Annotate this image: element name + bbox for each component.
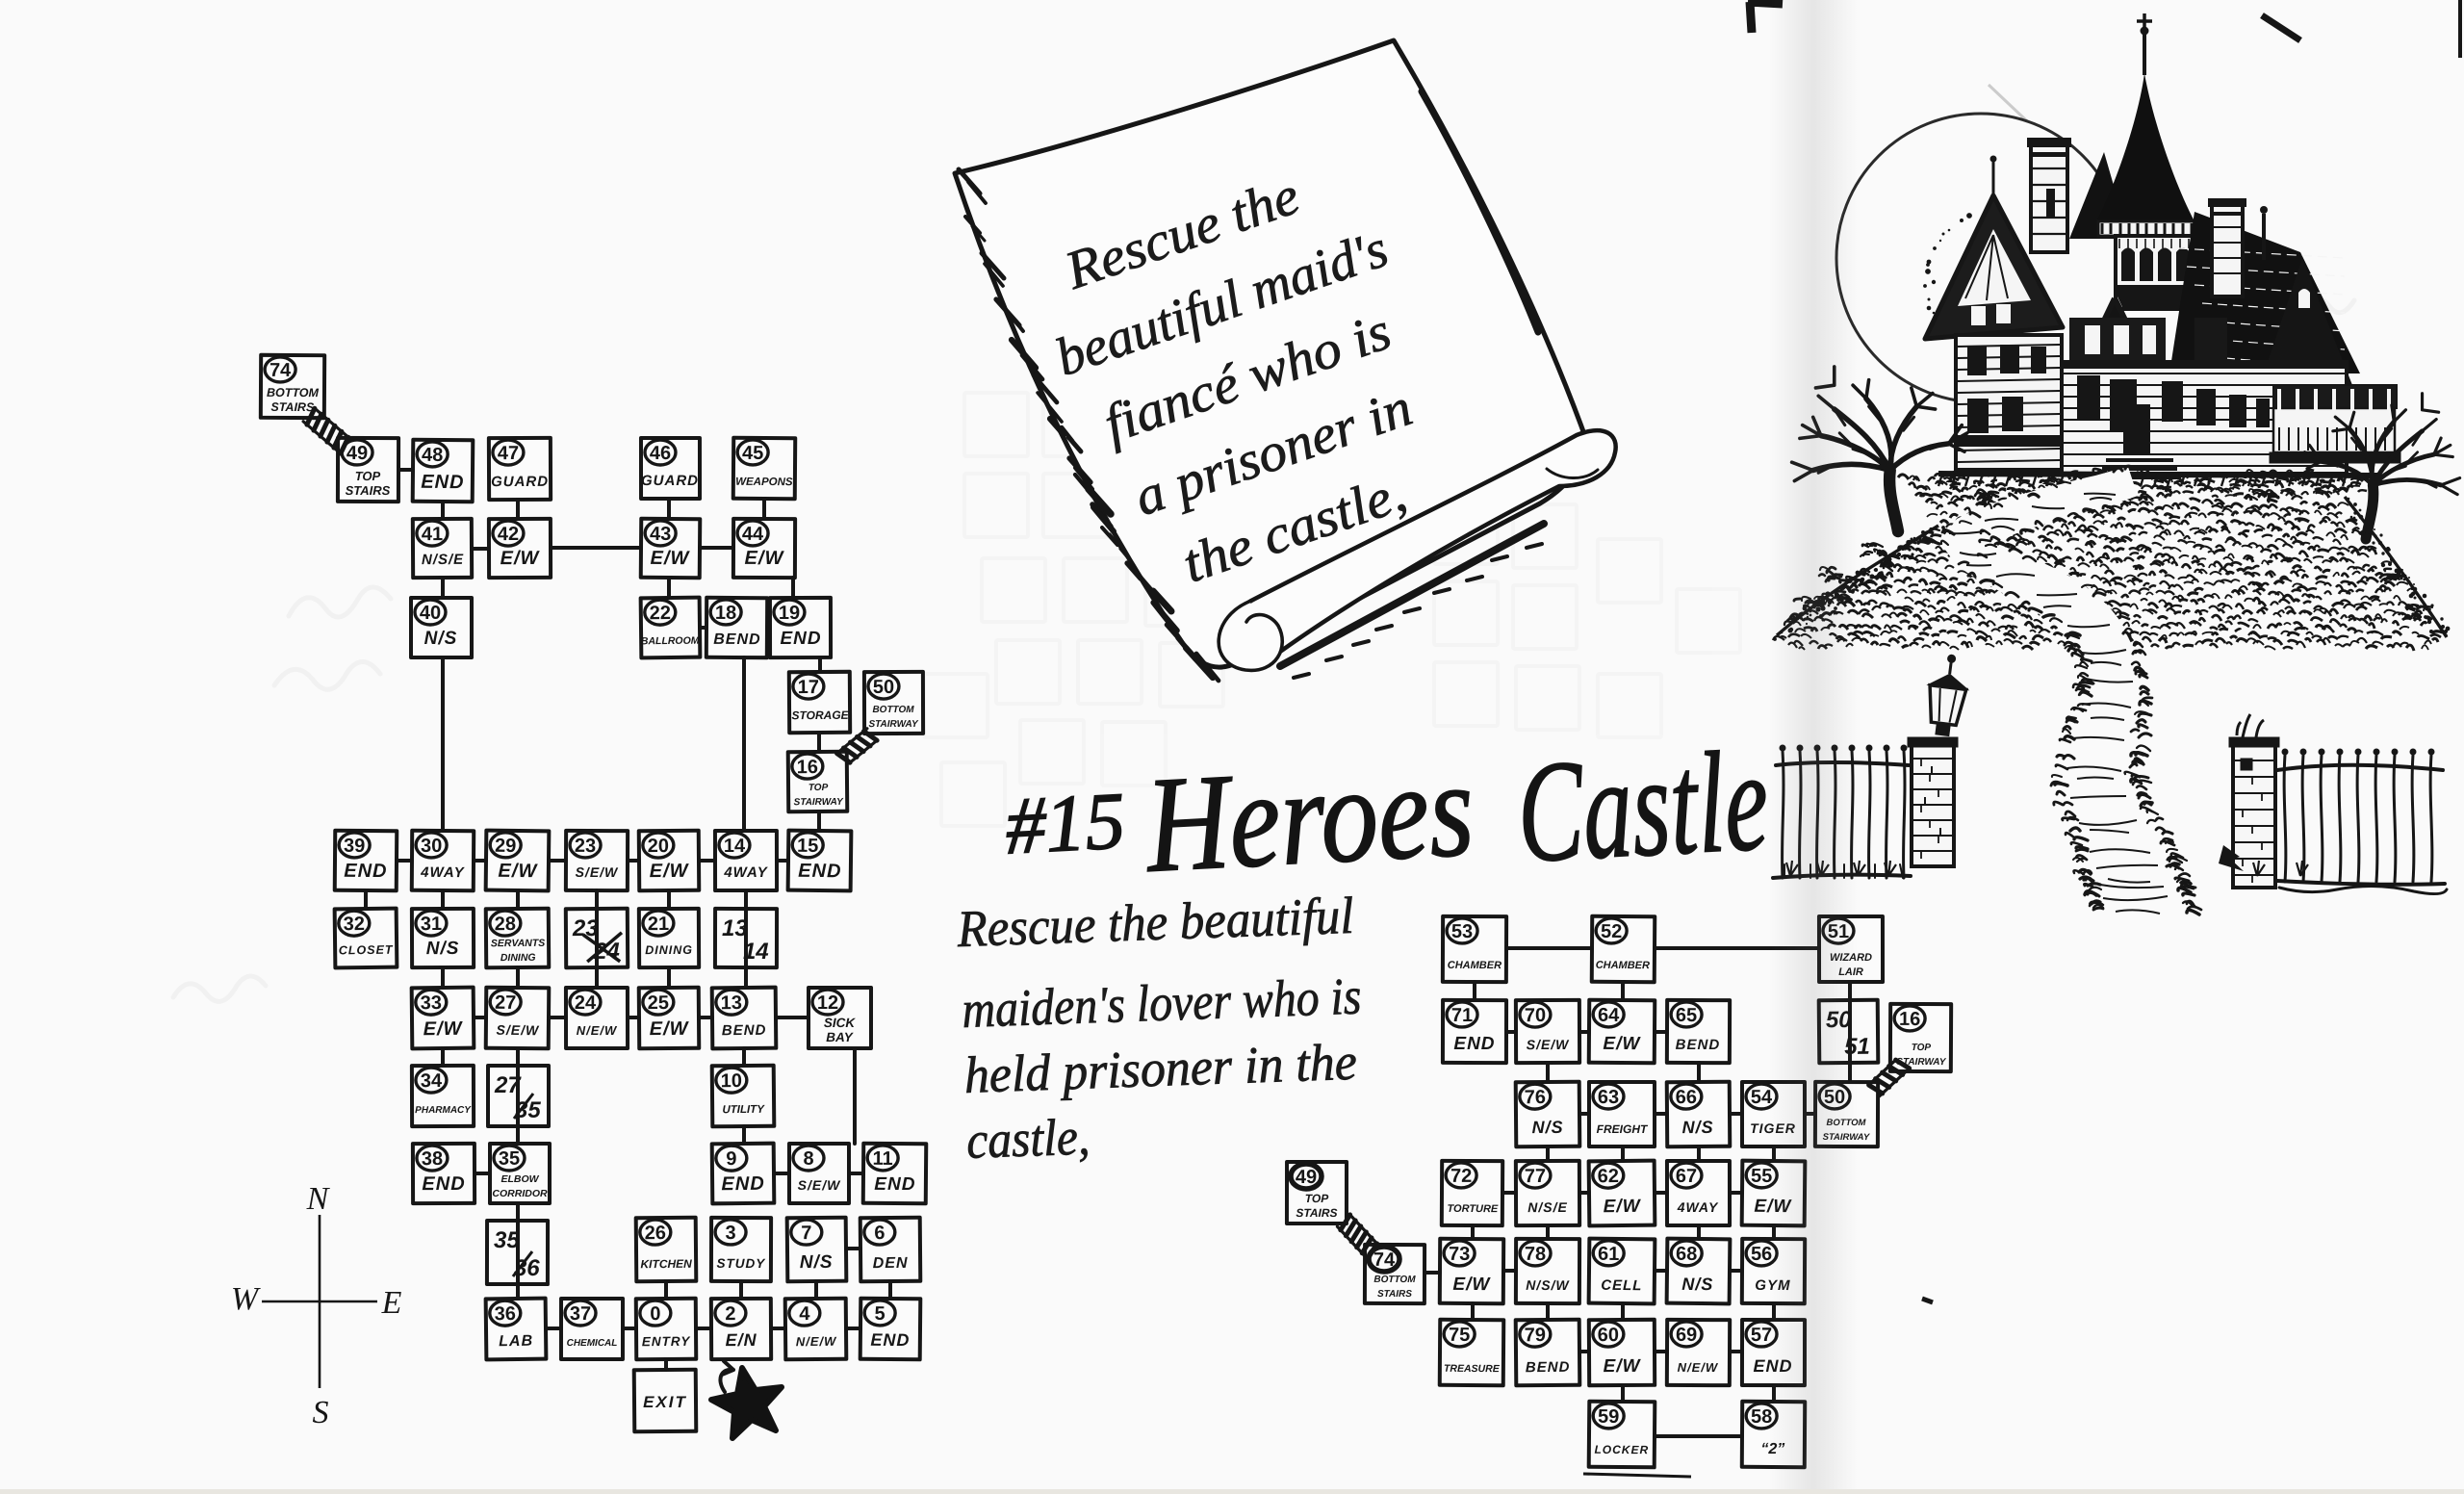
svg-text:SERVANTS: SERVANTS [491,938,546,949]
svg-text:N/S: N/S [800,1252,834,1273]
svg-text:KITCHEN: KITCHEN [640,1257,692,1271]
svg-text:CHAMBER: CHAMBER [1448,960,1501,971]
svg-text:TREASURE: TREASURE [1444,1363,1501,1375]
svg-text:21: 21 [648,914,669,935]
svg-text:52: 52 [1601,921,1622,942]
svg-text:TOP: TOP [1912,1043,1932,1053]
svg-text:72: 72 [1450,1166,1472,1187]
svg-text:Heroes: Heroes [1141,732,1476,901]
svg-text:STORAGE: STORAGE [791,708,849,722]
svg-text:BEND: BEND [1526,1359,1571,1376]
svg-text:33: 33 [421,992,442,1014]
svg-text:4WAY: 4WAY [723,864,768,881]
svg-text:E/W: E/W [1603,1034,1641,1054]
svg-text:0: 0 [650,1303,660,1325]
svg-text:41: 41 [422,524,443,545]
svg-text:24: 24 [575,992,597,1014]
svg-text:S: S [313,1395,329,1430]
svg-text:END: END [422,1173,465,1195]
svg-text:58: 58 [1751,1406,1772,1428]
svg-text:Castle: Castle [1514,720,1772,892]
svg-text:22: 22 [650,603,672,624]
svg-text:53: 53 [1451,921,1473,942]
svg-text:N/S: N/S [424,629,458,649]
svg-text:11: 11 [872,1148,892,1170]
svg-text:END: END [780,629,821,649]
svg-text:69: 69 [1676,1325,1697,1346]
svg-text:19: 19 [779,603,800,624]
svg-text:28: 28 [495,914,516,935]
svg-text:39: 39 [344,836,365,857]
svg-text:N/S/E: N/S/E [422,552,464,568]
svg-text:BAY: BAY [826,1030,855,1044]
svg-text:16: 16 [1899,1009,1920,1030]
svg-text:castle,: castle, [965,1107,1091,1169]
svg-text:20: 20 [648,836,669,857]
svg-text:LAB: LAB [499,1333,533,1350]
svg-text:E/W: E/W [1604,1197,1642,1217]
svg-text:57: 57 [1751,1325,1772,1346]
svg-text:E/N: E/N [726,1330,757,1350]
svg-text:E: E [381,1285,402,1321]
svg-text:37: 37 [570,1303,591,1325]
svg-text:STUDY: STUDY [717,1256,767,1271]
svg-text:36: 36 [495,1303,517,1325]
svg-text:N/S/W: N/S/W [1526,1277,1570,1293]
svg-text:E/W: E/W [498,861,538,882]
svg-text:S/E/W: S/E/W [496,1022,540,1038]
svg-text:13: 13 [721,992,742,1014]
svg-text:E/W: E/W [650,1018,690,1040]
svg-text:N/E/W: N/E/W [1678,1360,1719,1375]
svg-text:N: N [306,1181,331,1217]
svg-text:4WAY: 4WAY [1677,1199,1719,1215]
svg-text:56: 56 [1751,1244,1772,1265]
svg-text:E/W: E/W [650,861,690,882]
svg-text:BALLROOM: BALLROOM [641,635,700,648]
svg-text:N/S: N/S [1532,1118,1564,1137]
svg-text:18: 18 [715,603,736,624]
svg-text:SICK: SICK [824,1016,857,1030]
svg-text:END: END [874,1174,915,1195]
svg-text:TOP: TOP [355,469,381,483]
svg-text:DINING: DINING [645,943,693,957]
svg-text:END: END [870,1330,910,1350]
svg-text:35: 35 [499,1148,520,1170]
svg-text:17: 17 [798,677,819,698]
svg-text:47: 47 [498,443,519,464]
svg-text:END: END [798,861,841,883]
svg-text:BEND: BEND [722,1022,767,1039]
svg-text:70: 70 [1525,1005,1546,1026]
svg-text:TORTURE: TORTURE [1447,1203,1498,1215]
svg-text:N/S: N/S [1682,1118,1714,1137]
svg-text:6: 6 [874,1223,885,1244]
svg-text:16: 16 [797,757,818,778]
svg-text:CELL: CELL [1601,1277,1642,1294]
svg-text:66: 66 [1676,1087,1697,1108]
svg-text:79: 79 [1525,1325,1546,1346]
svg-text:END: END [344,861,387,882]
svg-text:BEND: BEND [1676,1037,1721,1053]
svg-text:45: 45 [742,443,763,464]
svg-text:CHEMICAL: CHEMICAL [567,1338,618,1349]
svg-text:49: 49 [346,443,368,464]
svg-text:65: 65 [1676,1005,1697,1026]
svg-text:5: 5 [874,1303,885,1325]
svg-text:78: 78 [1525,1244,1546,1265]
svg-text:34: 34 [421,1070,443,1092]
svg-text:2: 2 [725,1303,735,1325]
svg-text:N/E/W: N/E/W [577,1023,618,1038]
svg-text:76: 76 [1525,1087,1546,1108]
svg-text:TOP: TOP [1305,1192,1329,1205]
svg-text:7: 7 [801,1223,811,1244]
svg-text:71: 71 [1451,1005,1473,1026]
svg-text:#15: #15 [1004,776,1128,871]
svg-text:26: 26 [645,1223,666,1244]
svg-text:STAIRWAY: STAIRWAY [794,797,845,808]
svg-text:31: 31 [421,914,442,935]
svg-text:60: 60 [1598,1325,1619,1346]
svg-text:PHARMACY: PHARMACY [415,1105,472,1116]
svg-text:75: 75 [1449,1325,1470,1346]
svg-text:63: 63 [1598,1087,1619,1108]
svg-text:END: END [421,472,464,493]
svg-text:12: 12 [817,992,838,1014]
svg-text:E/W: E/W [423,1018,464,1040]
svg-text:27: 27 [495,992,516,1014]
svg-text:BOTTOM: BOTTOM [267,386,320,399]
svg-text:3: 3 [725,1223,735,1244]
svg-text:77: 77 [1525,1166,1546,1187]
svg-text:STAIRS: STAIRS [1377,1289,1412,1300]
svg-text:ELBOW: ELBOW [500,1173,539,1185]
svg-text:15: 15 [797,836,819,857]
svg-text:STAIRS: STAIRS [1296,1206,1337,1220]
svg-text:BOTTOM: BOTTOM [1373,1275,1416,1285]
svg-text:29: 29 [495,836,516,857]
svg-text:4WAY: 4WAY [420,864,466,881]
svg-text:43: 43 [650,524,671,545]
svg-text:DEN: DEN [873,1255,909,1272]
svg-text:25: 25 [648,992,669,1014]
svg-text:67: 67 [1676,1166,1697,1187]
svg-text:38: 38 [422,1148,443,1170]
svg-text:E/W: E/W [745,548,785,569]
svg-text:CLOSET: CLOSET [339,943,394,958]
svg-text:44: 44 [742,524,764,545]
svg-text:23: 23 [575,836,596,857]
svg-text:50: 50 [873,677,894,698]
svg-text:9: 9 [726,1148,736,1170]
svg-text:N/S/E: N/S/E [1527,1199,1568,1215]
svg-text:FREIGHT: FREIGHT [1597,1122,1649,1136]
svg-text:UTILITY: UTILITY [722,1104,765,1116]
svg-text:ENTRY: ENTRY [642,1334,692,1349]
svg-text:N/S: N/S [1681,1275,1713,1294]
svg-text:E/W: E/W [1452,1275,1491,1295]
svg-text:GUARD: GUARD [641,473,699,489]
svg-text:46: 46 [650,443,671,464]
svg-text:68: 68 [1676,1244,1697,1265]
svg-text:BOTTOM: BOTTOM [872,705,914,715]
svg-text:LOCKER: LOCKER [1594,1443,1649,1457]
svg-text:49: 49 [1296,1167,1317,1188]
svg-text:TOP: TOP [808,783,829,793]
svg-text:CHAMBER: CHAMBER [1596,960,1650,971]
svg-text:BEND: BEND [713,631,760,648]
svg-text:STAIRS: STAIRS [346,483,391,498]
svg-text:30: 30 [421,836,442,857]
svg-text:GUARD: GUARD [491,474,549,490]
svg-text:END: END [721,1173,764,1195]
svg-text:14: 14 [724,836,746,857]
svg-text:S/E/W: S/E/W [798,1177,841,1193]
svg-text:32: 32 [344,914,366,935]
svg-text:59: 59 [1598,1406,1619,1428]
svg-text:8: 8 [803,1148,813,1170]
svg-text:4: 4 [799,1303,810,1325]
svg-text:N/S: N/S [426,939,460,959]
svg-text:EXIT: EXIT [643,1393,687,1411]
svg-text:42: 42 [498,524,519,545]
svg-text:74: 74 [269,360,292,381]
svg-text:STAIRS: STAIRS [270,400,315,414]
svg-text:STAIRWAY: STAIRWAY [868,719,918,730]
svg-text:S/E/W: S/E/W [1527,1037,1571,1052]
svg-text:CORRIDOR: CORRIDOR [492,1188,548,1199]
svg-text:WEAPONS: WEAPONS [735,477,793,488]
svg-text:N/E/W: N/E/W [796,1334,837,1349]
svg-text:E/W: E/W [500,548,541,569]
svg-text:73: 73 [1449,1244,1470,1265]
svg-text:48: 48 [422,445,443,466]
svg-text:E/W: E/W [1604,1356,1642,1377]
svg-text:74: 74 [1373,1249,1396,1271]
svg-text:10: 10 [721,1070,742,1092]
svg-text:40: 40 [420,603,441,624]
svg-text:DINING: DINING [500,952,536,964]
svg-text:E/W: E/W [650,548,690,569]
svg-text:61: 61 [1598,1244,1619,1265]
svg-text:64: 64 [1598,1005,1620,1026]
svg-text:W: W [231,1281,261,1317]
svg-text:S/E/W: S/E/W [576,864,620,880]
svg-text:END: END [1453,1034,1495,1054]
svg-text:62: 62 [1598,1166,1619,1187]
